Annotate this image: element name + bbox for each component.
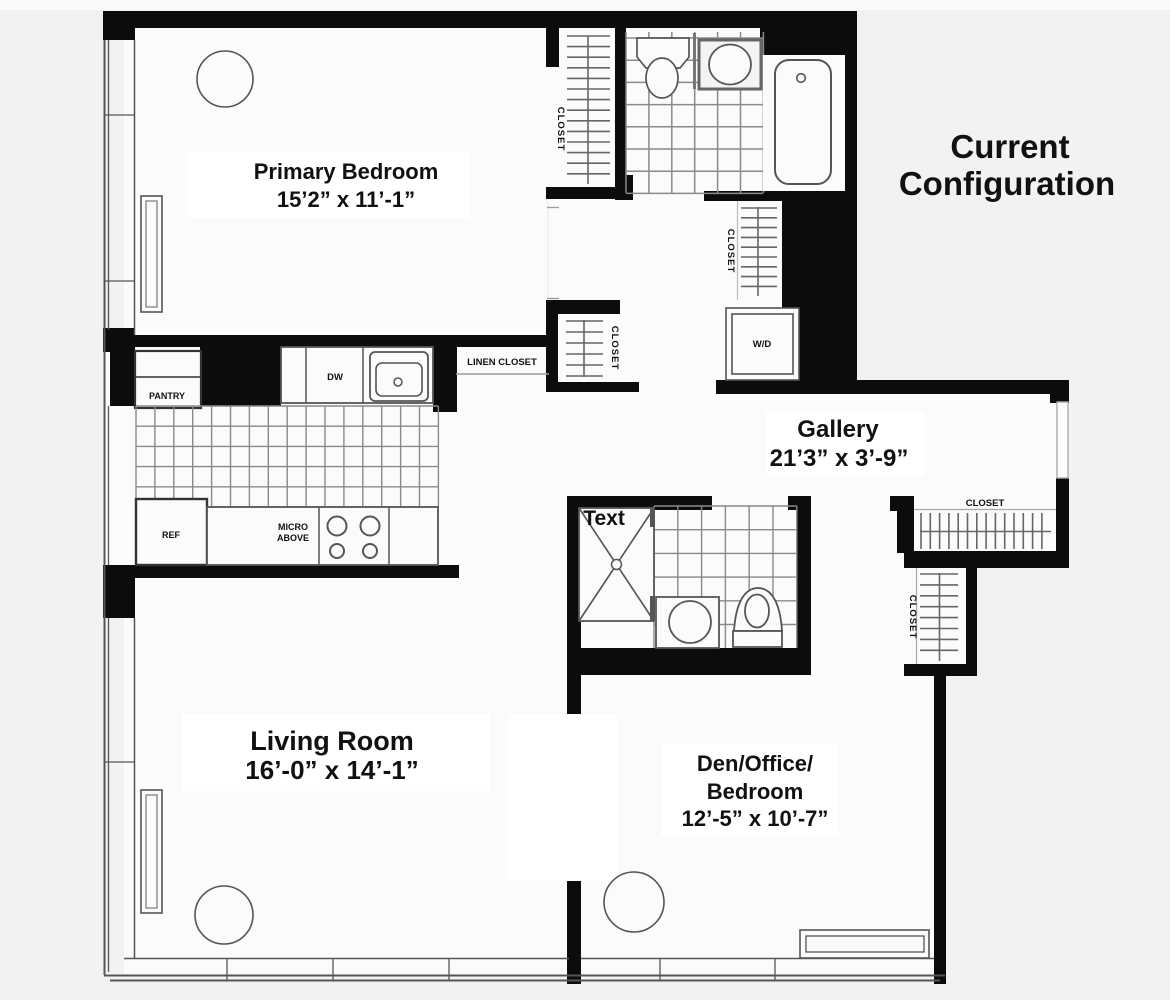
svg-text:PANTRY: PANTRY bbox=[149, 391, 185, 401]
svg-text:REF: REF bbox=[162, 530, 181, 540]
svg-text:ABOVE: ABOVE bbox=[277, 533, 309, 543]
svg-text:Bedroom: Bedroom bbox=[707, 779, 804, 804]
svg-text:Text: Text bbox=[583, 507, 625, 530]
svg-text:CLOSET: CLOSET bbox=[555, 107, 566, 152]
svg-text:CLOSET: CLOSET bbox=[966, 498, 1005, 509]
svg-text:Living Room: Living Room bbox=[250, 726, 414, 756]
svg-text:W/D: W/D bbox=[753, 339, 772, 350]
svg-text:16’-0” x 14’-1”: 16’-0” x 14’-1” bbox=[245, 755, 418, 785]
svg-text:CLOSET: CLOSET bbox=[725, 229, 736, 274]
svg-text:Gallery: Gallery bbox=[797, 416, 879, 443]
svg-text:21’3” x 3’-9”: 21’3” x 3’-9” bbox=[770, 445, 909, 472]
svg-text:15’2” x 11’-1”: 15’2” x 11’-1” bbox=[277, 187, 415, 212]
svg-text:12’-5” x 10’-7”: 12’-5” x 10’-7” bbox=[682, 806, 829, 831]
svg-text:CLOSET: CLOSET bbox=[609, 326, 620, 371]
svg-text:Den/Office/: Den/Office/ bbox=[697, 751, 813, 776]
svg-text:LINEN CLOSET: LINEN CLOSET bbox=[467, 357, 537, 368]
svg-text:MICRO: MICRO bbox=[278, 522, 308, 532]
svg-text:CLOSET: CLOSET bbox=[907, 595, 918, 640]
svg-text:Primary Bedroom: Primary Bedroom bbox=[254, 159, 439, 184]
svg-text:Current: Current bbox=[950, 128, 1069, 165]
svg-text:Configuration: Configuration bbox=[899, 165, 1115, 202]
svg-text:DW: DW bbox=[327, 372, 343, 383]
